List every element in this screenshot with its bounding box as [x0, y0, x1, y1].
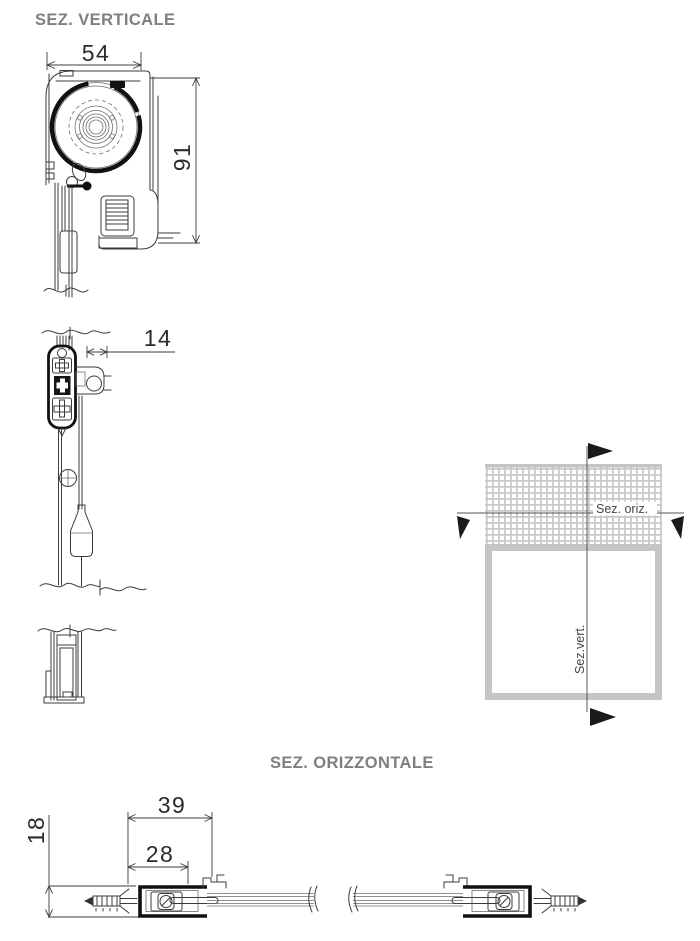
left-guide-assembly — [84, 875, 226, 916]
roller-box-drawing — [44, 71, 180, 298]
roller-hub — [69, 100, 123, 154]
title-horizontal-section: SEZ. ORIZZONTALE — [270, 754, 434, 772]
screw-head — [60, 470, 77, 487]
screen-mesh-lines — [207, 886, 463, 912]
dimension-14-group: 14 — [87, 325, 175, 358]
dimension-box-width: 54 — [82, 40, 111, 66]
right-guide-assembly — [444, 875, 587, 916]
guide-channel-right — [452, 887, 530, 916]
wall-anchor-right — [534, 889, 587, 913]
cut-direction-arrow-left — [457, 516, 470, 539]
cord-lines — [40, 396, 146, 595]
cut-direction-arrow-top — [588, 443, 613, 459]
box-side-bracket — [46, 162, 54, 179]
technical-drawing-page: SEZ. VERTICALE SEZ. ORIZZONTALE — [0, 0, 700, 941]
dimension-bottom-bar-depth: 14 — [144, 325, 173, 351]
label-sez-oriz: Sez. oriz. — [596, 502, 648, 516]
dimension-assembly-depth: 39 — [158, 792, 187, 818]
dimension-box-height: 91 — [169, 143, 195, 172]
cut-direction-arrow-bottom — [590, 708, 616, 726]
screw-boss-top — [53, 358, 72, 373]
break-mark — [40, 583, 100, 587]
cut-direction-arrow-right — [671, 516, 684, 539]
bottom-bar-detail — [42, 327, 111, 428]
dimension-28-group: 28 — [128, 841, 188, 884]
latch-hook — [76, 367, 112, 394]
cord-tension-knob — [71, 505, 93, 586]
break-mark — [42, 330, 110, 333]
break-mark — [38, 629, 116, 632]
break-mark — [349, 886, 358, 912]
dimension-54-group: 54 — [47, 40, 141, 70]
window-schematic: Sez. oriz. Sez.vert. — [457, 443, 684, 726]
dimension-guide-depth: 28 — [146, 841, 175, 867]
break-mark — [309, 886, 318, 912]
dimension-guide-height: 18 — [23, 816, 49, 845]
screw-boss-bottom — [53, 398, 72, 420]
drawing-canvas: SEZ. VERTICALE SEZ. ORIZZONTALE — [0, 0, 700, 941]
dimension-18-group: 18 — [23, 815, 139, 918]
dimension-39-group: 39 — [128, 792, 212, 884]
guide-channel-left — [140, 887, 218, 916]
sill-guide-detail — [38, 625, 116, 703]
screw-boss-middle — [54, 376, 71, 395]
title-vertical-section: SEZ. VERTICALE — [35, 11, 175, 29]
break-mark — [100, 587, 146, 591]
wall-anchor-left — [84, 889, 137, 913]
ribbed-clutch-block — [99, 196, 137, 248]
rolled-screen — [52, 81, 140, 171]
screen-exit-channel — [44, 183, 88, 297]
label-sez-vert: Sez.vert. — [573, 625, 587, 674]
